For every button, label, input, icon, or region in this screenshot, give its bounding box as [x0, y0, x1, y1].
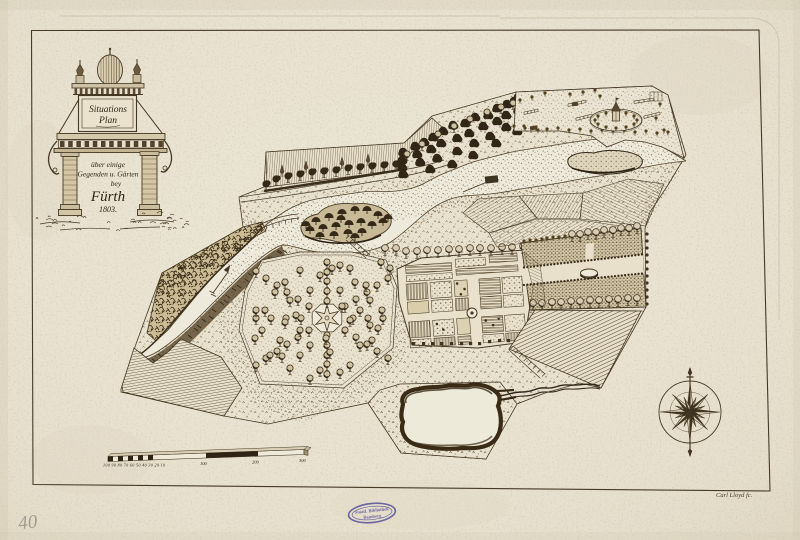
svg-text:1803.: 1803.	[99, 205, 117, 214]
svg-text:300: 300	[299, 458, 307, 463]
svg-text:200: 200	[252, 460, 260, 465]
svg-text:Carl Lloyd fc.: Carl Lloyd fc.	[716, 492, 753, 499]
svg-text:Gegenden u. Gärten: Gegenden u. Gärten	[77, 170, 138, 179]
svg-text:bey: bey	[111, 179, 122, 188]
svg-text:Plan: Plan	[98, 116, 117, 126]
svg-text:über einige: über einige	[91, 160, 126, 169]
svg-text:100: 100	[200, 461, 208, 466]
svg-text:Fürth: Fürth	[90, 189, 125, 205]
svg-text:40: 40	[17, 511, 39, 534]
svg-text:100 90 80 70 60 50 40 30 20 10: 100 90 80 70 60 50 40 30 20 10	[103, 463, 165, 468]
svg-text:Situations: Situations	[89, 105, 127, 115]
